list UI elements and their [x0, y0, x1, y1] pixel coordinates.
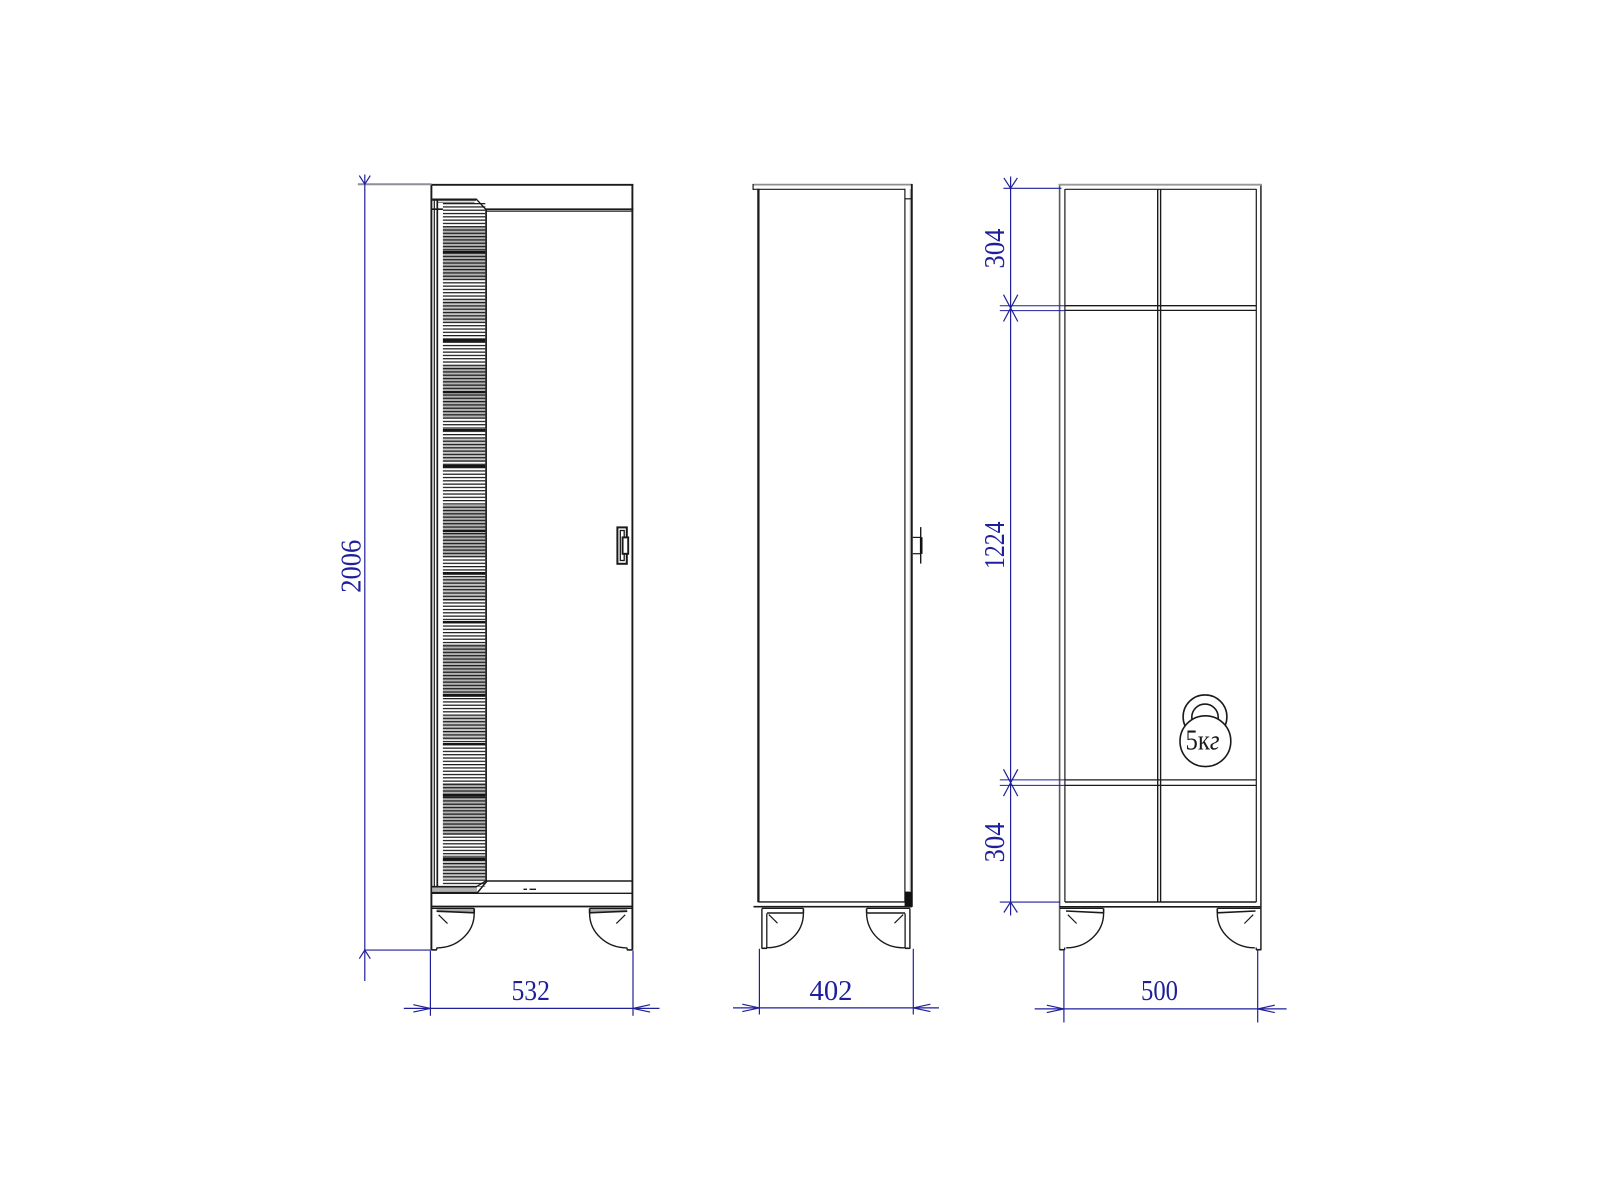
svg-text:5кг: 5кг: [1186, 725, 1220, 757]
svg-text:304: 304: [980, 822, 1011, 862]
svg-text:402: 402: [810, 976, 853, 1007]
svg-text:304: 304: [980, 229, 1011, 269]
svg-text:532: 532: [511, 976, 550, 1007]
svg-text:500: 500: [1141, 976, 1178, 1007]
svg-text:2006: 2006: [337, 540, 368, 593]
svg-text:1224: 1224: [980, 522, 1011, 570]
